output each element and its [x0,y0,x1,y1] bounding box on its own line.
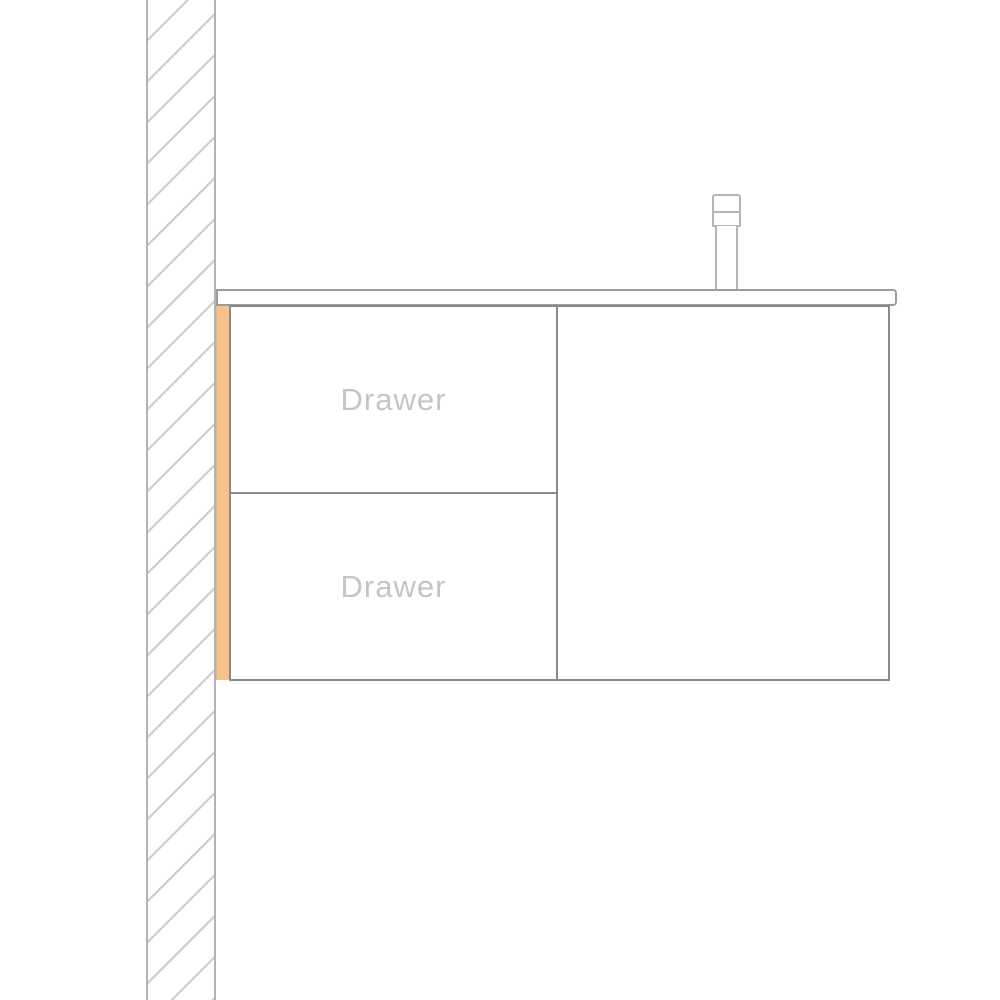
faucet-cap-line [714,211,739,213]
faucet-icon [712,194,741,227]
countertop-slab [216,289,897,306]
vanity-product-diagram: Drawer Drawer [0,0,1000,1000]
vanity-cabinet: Drawer Drawer [229,305,890,681]
hatched-wall [146,0,216,1000]
drawer-bottom: Drawer [231,494,556,679]
door-panel [558,307,888,679]
drawer-top: Drawer [231,307,556,492]
drawer-divider-line [231,492,558,494]
drawer-bottom-label: Drawer [341,569,447,605]
wall-mount-strip [216,306,230,680]
faucet-tube [715,226,738,290]
drawer-top-label: Drawer [341,382,447,418]
